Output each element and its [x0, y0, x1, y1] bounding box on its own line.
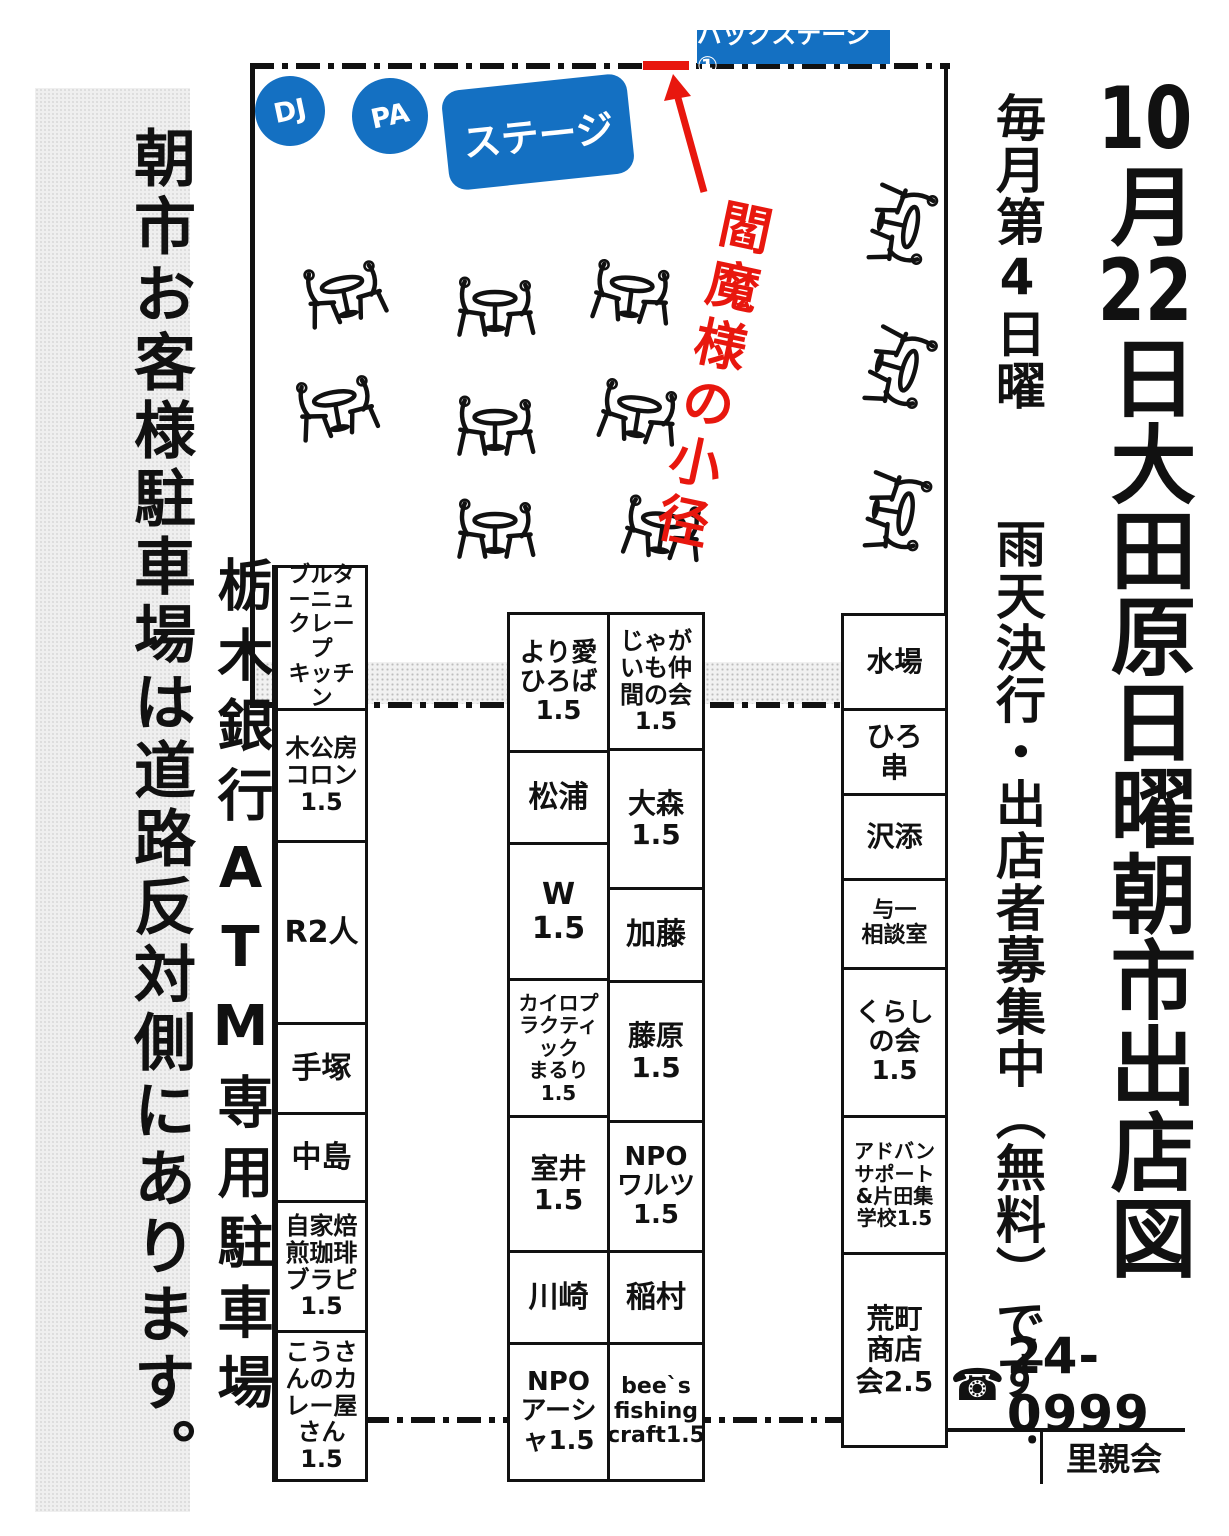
org-box-rule	[1040, 1428, 1043, 1484]
customer-parking-notice: 朝市お客様駐車場は道路反対側にあります。	[35, 106, 190, 1506]
table-icon	[449, 395, 541, 459]
title-month-num: 10	[1095, 76, 1195, 162]
footer-rule	[948, 1428, 1185, 1432]
schedule-text: 毎月第4日曜	[988, 92, 1046, 412]
booth-cell: 川崎	[507, 1250, 610, 1345]
booth-cell: 手塚	[272, 1022, 368, 1115]
map-left-border	[250, 66, 255, 708]
booth-cell: アドバン サポート &片田集 学校1.5	[841, 1115, 948, 1255]
table-icon	[449, 276, 541, 340]
table-icon	[856, 315, 943, 421]
booth-cell: NPO ワルツ1.5	[607, 1120, 705, 1253]
booth-cell: より愛ひろば1.5	[507, 612, 610, 753]
booth-cell: 松浦	[507, 750, 610, 845]
booth-cell: ブルターニュ クレープ キッチン	[272, 565, 368, 711]
booth-cell: R2人	[272, 840, 368, 1025]
phone-number: 24-0999	[1007, 1327, 1190, 1443]
flyer-page: 朝市お客様駐車場は道路反対側にあります。 栃木銀行ATM専用駐車場 DJ PA …	[0, 0, 1229, 1536]
parking-notice-strip: 朝市お客様駐車場は道路反対側にあります。	[35, 88, 190, 1512]
booth-cell: 大森 1.5	[607, 748, 705, 890]
stage: ステージ	[440, 73, 635, 192]
enma-path-label: 閻魔様の小径	[628, 191, 771, 558]
booth-cell: W 1.5	[507, 842, 610, 981]
booth-cell: 沢添	[841, 793, 948, 881]
booth-cell: NPO アーシャ1.5	[507, 1342, 610, 1482]
booth-cell: 荒町 商店 会2.5	[841, 1252, 948, 1448]
booth-cell: 加藤	[607, 887, 705, 983]
booth-cell: 自家焙煎珈琲ブラピ1.5	[272, 1200, 368, 1333]
table-icon	[581, 257, 680, 332]
schedule-note: 毎月第4日曜 雨天決行・出店者募集中（無料）です！	[960, 92, 1042, 1454]
title-day-kanji: 日	[1095, 334, 1195, 420]
phone-contact: ☎ 24-0999	[950, 1356, 1190, 1414]
title-month-kanji: 月	[1095, 162, 1195, 248]
booth-cell: くらし の会 1.5	[841, 967, 948, 1118]
booth-cell: カイロプラクティック まるり 1.5	[507, 978, 610, 1118]
backstage-label: バックステージ①	[697, 30, 890, 64]
organizer-name: 里親会	[1046, 1436, 1182, 1478]
booth-cell: じゃがいも仲間の会 1.5	[607, 612, 705, 751]
table-icon	[292, 253, 395, 335]
backstage-entrance-mark	[643, 61, 689, 70]
recruit-text: 雨天決行・出店者募集中（無料）です！	[988, 518, 1046, 1454]
dj-booth: DJ	[248, 69, 331, 152]
booth-cell: 稲村	[607, 1250, 705, 1345]
booth-cell: 室井 1.5	[507, 1115, 610, 1253]
page-title: 10月22日大田原日曜朝市出店図	[1046, 76, 1188, 1280]
booth-cell: こうさんのカレー屋さん1.5	[272, 1330, 368, 1482]
booth-cell: 中島	[272, 1112, 368, 1203]
table-icon	[285, 368, 387, 447]
table-icon	[856, 461, 935, 563]
booth-cell: 藤原 1.5	[607, 980, 705, 1123]
booth-cell: bee`s fishing craft1.5	[607, 1342, 705, 1482]
booth-cell: ひろ 串	[841, 708, 948, 796]
title-day-num: 22	[1095, 248, 1195, 334]
path-arrow-icon	[660, 74, 716, 196]
booth-cell: 水場	[841, 613, 948, 711]
table-icon	[860, 173, 942, 276]
booth-cell: 木公房コロン1.5	[272, 708, 368, 843]
title-main: 大田原日曜朝市出店図	[1095, 420, 1195, 1280]
phone-icon: ☎	[950, 1360, 1005, 1411]
booth-cell: 与一 相談室	[841, 878, 948, 970]
atm-parking-notice: 栃木銀行ATM専用駐車場	[190, 556, 268, 1423]
table-icon	[449, 498, 541, 562]
pa-booth: PA	[345, 71, 435, 161]
